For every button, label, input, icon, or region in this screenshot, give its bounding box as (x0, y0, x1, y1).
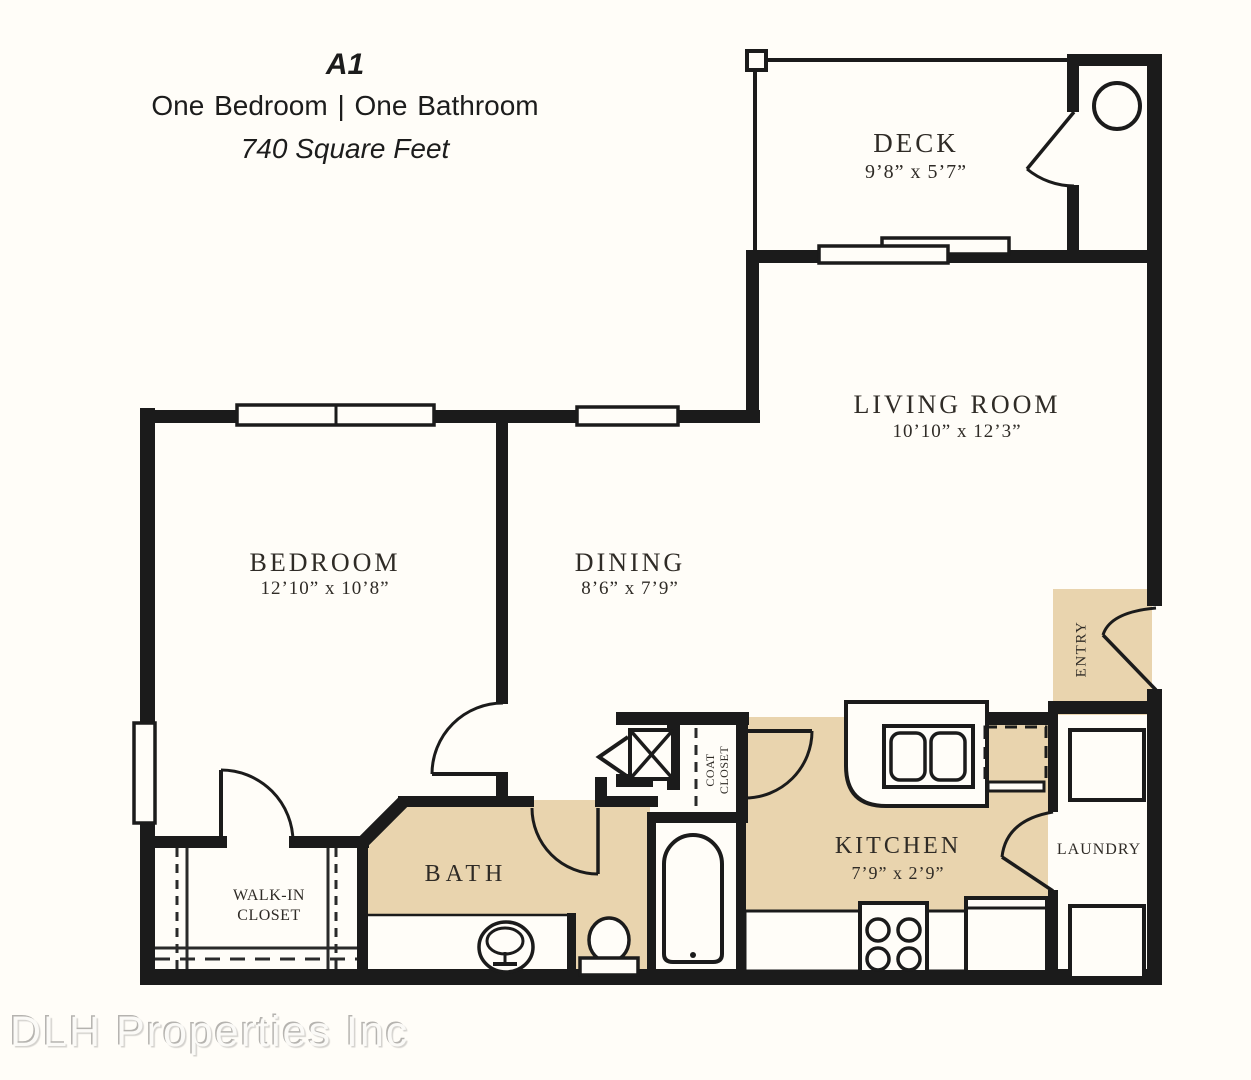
washer (1070, 730, 1144, 800)
room-label-bath: BATH (425, 861, 508, 888)
utility-closet-top-wall (616, 712, 749, 725)
bathtub-drain (690, 952, 696, 958)
stove-burner-2 (898, 919, 920, 941)
tub-left-wall (647, 812, 656, 972)
room-label-kitchen: KITCHEN (835, 833, 961, 860)
stove-burner-1 (867, 919, 889, 941)
bedroom-side-window (134, 723, 155, 823)
deck-storage-door-arc (1027, 169, 1074, 186)
bath-corner-stub (595, 777, 607, 807)
deck-post (747, 51, 766, 70)
deck-storage (1027, 83, 1140, 186)
room-label-walkin-closet: WALK-IN CLOSET (214, 886, 324, 926)
plan-code: A1 (95, 48, 595, 82)
plan-subtitle: One Bedroom | One Bathroom (95, 90, 595, 122)
closet-bath-wall (357, 836, 368, 972)
left-exterior-wall (140, 408, 155, 985)
room-dims-living: 10’10” x 12’3” (892, 421, 1021, 443)
kitchen-base-counter (745, 911, 968, 971)
room-label-coat-closet: COAT CLOSET (703, 738, 731, 802)
room-label-deck: DECK (873, 128, 959, 159)
living-left-wall (746, 250, 759, 423)
dishwasher-counter-edge (988, 782, 1044, 791)
kitchen-sink-basin-left (891, 733, 925, 780)
room-dims-kitchen: 7’9” x 2’9” (852, 863, 945, 884)
entry-floor (1053, 589, 1152, 715)
entry-laundry-wall (1048, 701, 1160, 714)
deck-storage-door-leaf (1027, 112, 1074, 169)
vanity-divider-wall (567, 913, 576, 972)
room-dims-deck: 9’8” x 5’7” (865, 161, 967, 184)
stove-burner-4 (898, 948, 920, 970)
room-label-bedroom: BEDROOM (249, 548, 400, 578)
room-dims-dining: 8’6” x 7’9” (581, 578, 679, 600)
dryer (1070, 906, 1144, 978)
watermark: DLH Properties Inc (10, 1008, 409, 1057)
bifold-door-chevron-icon (599, 737, 628, 777)
plan-area: 740 Square Feet (95, 133, 595, 165)
title-block: A1 One Bedroom | One Bathroom 740 Square… (95, 48, 595, 165)
deck-storage-left-wall-lower (1067, 185, 1079, 252)
toilet-bowl (589, 918, 629, 962)
water-heater-tank (1094, 83, 1140, 129)
room-label-dining: DINING (575, 548, 685, 578)
room-label-living: LIVING ROOM (853, 390, 1060, 420)
room-label-entry: ENTRY (1074, 621, 1091, 678)
bathtub (664, 835, 722, 962)
sliding-door-pane-front (819, 246, 948, 263)
right-exterior-wall-lower (1147, 689, 1162, 985)
toilet-tank (580, 958, 638, 975)
floorplan-page: A1 One Bedroom | One Bathroom 740 Square… (0, 0, 1251, 1080)
kitchen-laundry-wall-lower (1048, 890, 1058, 972)
room-dims-bedroom: 12’10” x 10’8” (260, 578, 389, 600)
kitchen-top-wall (980, 712, 1058, 725)
dining-window (577, 407, 678, 425)
right-exterior-wall-upper (1147, 54, 1162, 606)
room-label-laundry: LAUNDRY (1057, 841, 1141, 859)
bedroom-door-arc (432, 703, 503, 774)
bedroom-right-wall (496, 412, 508, 704)
deck-storage-top-wall (1067, 54, 1160, 66)
coat-closet-right-wall (736, 712, 748, 816)
kitchen-laundry-wall-upper (1048, 712, 1058, 812)
kitchen-sink-basin-right (931, 733, 965, 780)
bedroom-bottom-wall-left (145, 836, 227, 848)
bath-top-wall (398, 796, 534, 807)
stove-burner-3 (867, 948, 889, 970)
walkin-closet-door-arc (221, 770, 293, 842)
tub-top-wall (647, 814, 746, 823)
